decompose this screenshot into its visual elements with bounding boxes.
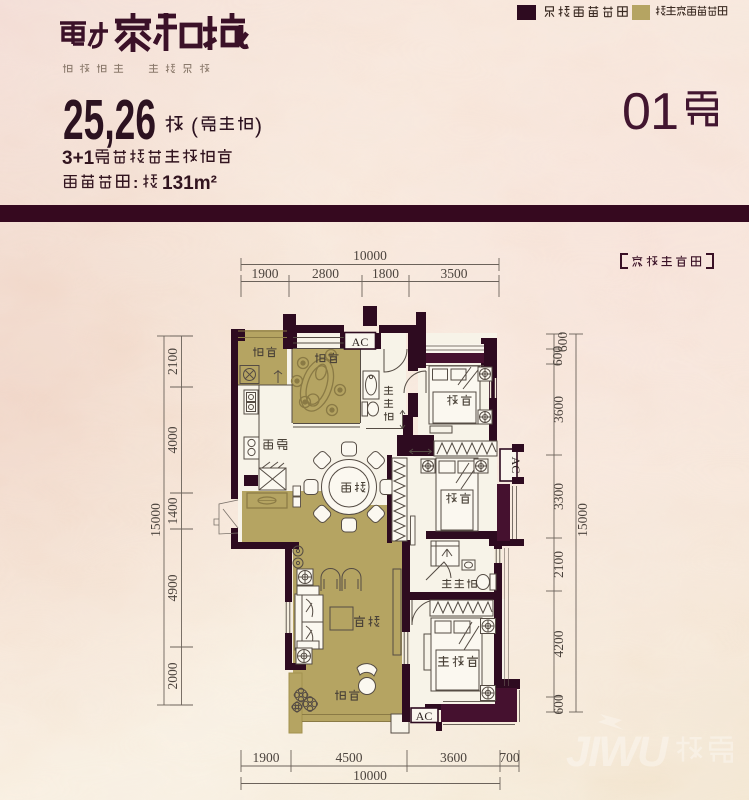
svg-text:10000: 10000 bbox=[353, 768, 387, 783]
svg-text:15000: 15000 bbox=[575, 503, 590, 537]
svg-text:): ) bbox=[255, 115, 262, 138]
svg-text:3300: 3300 bbox=[551, 483, 566, 510]
svg-text:2000: 2000 bbox=[165, 662, 180, 689]
svg-text:AC: AC bbox=[416, 709, 433, 723]
svg-text:2100: 2100 bbox=[165, 348, 180, 375]
svg-text:(: ( bbox=[191, 115, 198, 138]
svg-text:4900: 4900 bbox=[165, 574, 180, 601]
svg-text:131m²: 131m² bbox=[162, 173, 217, 194]
svg-text:2100: 2100 bbox=[551, 551, 566, 578]
svg-text::: : bbox=[133, 175, 138, 192]
svg-text:25,26: 25,26 bbox=[63, 88, 156, 152]
svg-text:600: 600 bbox=[550, 346, 565, 367]
svg-text:1900: 1900 bbox=[253, 750, 280, 765]
svg-text:700: 700 bbox=[499, 750, 520, 765]
svg-text:JIWU: JIWU bbox=[566, 728, 669, 776]
svg-text:4200: 4200 bbox=[551, 630, 566, 657]
svg-text:15000: 15000 bbox=[148, 503, 163, 537]
svg-text:2800: 2800 bbox=[312, 266, 339, 281]
svg-text:1400: 1400 bbox=[165, 497, 180, 524]
svg-text:4500: 4500 bbox=[336, 750, 363, 765]
svg-text:3600: 3600 bbox=[551, 396, 566, 423]
svg-text:10000: 10000 bbox=[353, 248, 387, 263]
svg-text:AC: AC bbox=[352, 335, 369, 349]
svg-text:600: 600 bbox=[551, 694, 566, 715]
svg-text:3500: 3500 bbox=[441, 266, 468, 281]
svg-text:AC: AC bbox=[509, 457, 523, 474]
svg-text:1800: 1800 bbox=[372, 266, 399, 281]
svg-text:4000: 4000 bbox=[165, 426, 180, 453]
svg-text:3+1: 3+1 bbox=[62, 148, 95, 169]
svg-text:1900: 1900 bbox=[252, 266, 279, 281]
svg-text:3600: 3600 bbox=[440, 750, 467, 765]
svg-text:01: 01 bbox=[622, 83, 679, 141]
